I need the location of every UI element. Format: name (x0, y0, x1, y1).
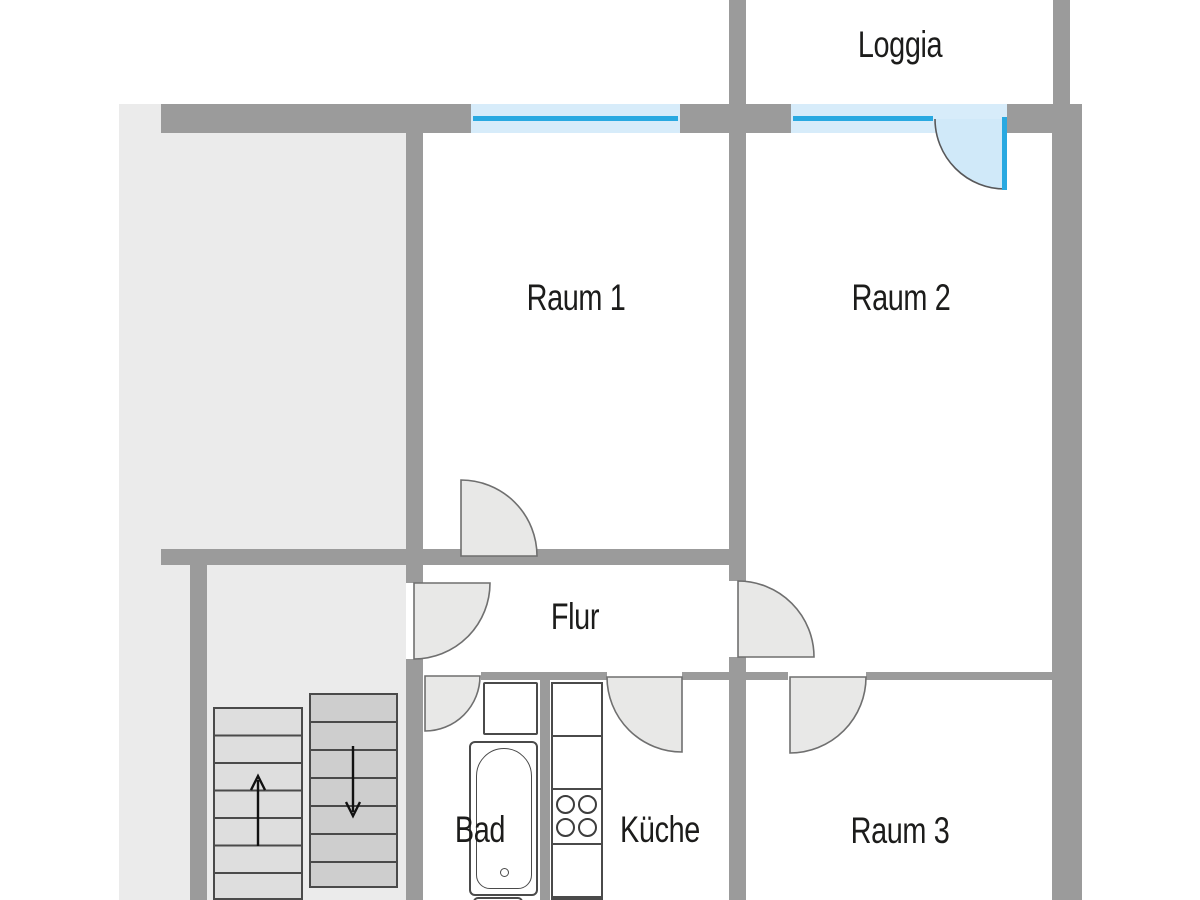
kueche-door-arc (607, 677, 682, 752)
room-label-raum2: Raum 2 (852, 277, 951, 319)
bad-door-arc (425, 676, 480, 731)
room-label-raum3: Raum 3 (851, 810, 950, 852)
room-label-loggia: Loggia (858, 24, 942, 66)
raum3-door-arc (790, 677, 866, 753)
room-label-flur: Flur (551, 596, 599, 638)
balcony-door-leaf (1002, 117, 1007, 190)
balcony-door-arc (935, 119, 1005, 189)
raum1-door-arc (461, 480, 537, 556)
room-label-kueche: Küche (620, 809, 700, 851)
stairs-down-arrow-icon (346, 746, 360, 816)
flur-raum2-door-arc (738, 581, 814, 657)
stairs-up-arrow-icon (251, 776, 265, 846)
room-label-raum1: Raum 1 (527, 277, 626, 319)
floor-plan: Loggia Raum 1 Raum 2 Flur Bad Küche Raum… (0, 0, 1200, 900)
entrance-door-arc (414, 583, 490, 659)
room-label-bad: Bad (455, 809, 505, 851)
door-symbols-layer (0, 0, 1200, 900)
